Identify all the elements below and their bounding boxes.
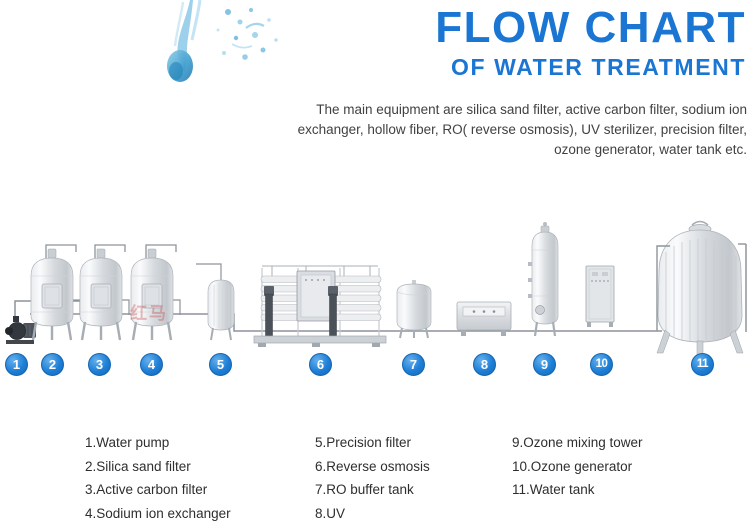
ozone-mixing-tower-illustration bbox=[528, 222, 558, 336]
legend-item: 9.Ozone mixing tower bbox=[512, 431, 643, 455]
ozone-generator-illustration bbox=[586, 266, 614, 327]
step-badge-9: 9 bbox=[533, 353, 556, 376]
legend-item: 11.Water tank bbox=[512, 478, 643, 502]
water-pump-illustration bbox=[5, 316, 36, 344]
equipment-description: The main equipment are silica sand filte… bbox=[277, 100, 747, 160]
legend-item: 2.Silica sand filter bbox=[85, 455, 231, 479]
legend-column-2: 5.Precision filter6.Reverse osmosis7.RO … bbox=[315, 431, 430, 525]
water-splash-graphic bbox=[128, 0, 303, 96]
step-badge-11: 11 bbox=[691, 353, 714, 376]
legend-item: 8.UV bbox=[315, 502, 430, 526]
step-badge-2: 2 bbox=[41, 353, 64, 376]
step-badge-7: 7 bbox=[402, 353, 425, 376]
step-badge-6: 6 bbox=[309, 353, 332, 376]
step-badge-1: 1 bbox=[5, 353, 28, 376]
step-badge-8: 8 bbox=[473, 353, 496, 376]
step-badge-10: 10 bbox=[590, 353, 613, 376]
header: FLOW CHART OF WATER TREATMENT bbox=[435, 6, 746, 79]
page-title: FLOW CHART bbox=[435, 6, 746, 50]
step-badge-5: 5 bbox=[209, 353, 232, 376]
precision-filter-illustration bbox=[196, 264, 234, 340]
legend-item: 10.Ozone generator bbox=[512, 455, 643, 479]
silica-sand-filter-illustration bbox=[31, 245, 80, 340]
legend-column-3: 9.Ozone mixing tower10.Ozone generator11… bbox=[512, 431, 643, 502]
legend-item: 1.Water pump bbox=[85, 431, 231, 455]
step-badge-3: 3 bbox=[88, 353, 111, 376]
page-subtitle: OF WATER TREATMENT bbox=[435, 56, 746, 79]
water-tank-illustration bbox=[657, 222, 746, 357]
legend-column-1: 1.Water pump2.Silica sand filter3.Active… bbox=[85, 431, 231, 525]
legend-item: 6.Reverse osmosis bbox=[315, 455, 430, 479]
step-badge-4: 4 bbox=[140, 353, 163, 376]
ro-buffer-tank-illustration bbox=[397, 280, 431, 338]
active-carbon-filter-illustration bbox=[80, 245, 129, 340]
page: FLOW CHART OF WATER TREATMENT The main e… bbox=[0, 0, 752, 529]
sodium-ion-exchanger-illustration bbox=[131, 245, 180, 340]
reverse-osmosis-illustration bbox=[254, 266, 386, 347]
legend-item: 5.Precision filter bbox=[315, 431, 430, 455]
legend-item: 4.Sodium ion exchanger bbox=[85, 502, 231, 526]
legend-item: 3.Active carbon filter bbox=[85, 478, 231, 502]
legend-item: 7.RO buffer tank bbox=[315, 478, 430, 502]
watermark-text: 红马 bbox=[130, 299, 168, 324]
flow-diagram bbox=[0, 195, 752, 360]
